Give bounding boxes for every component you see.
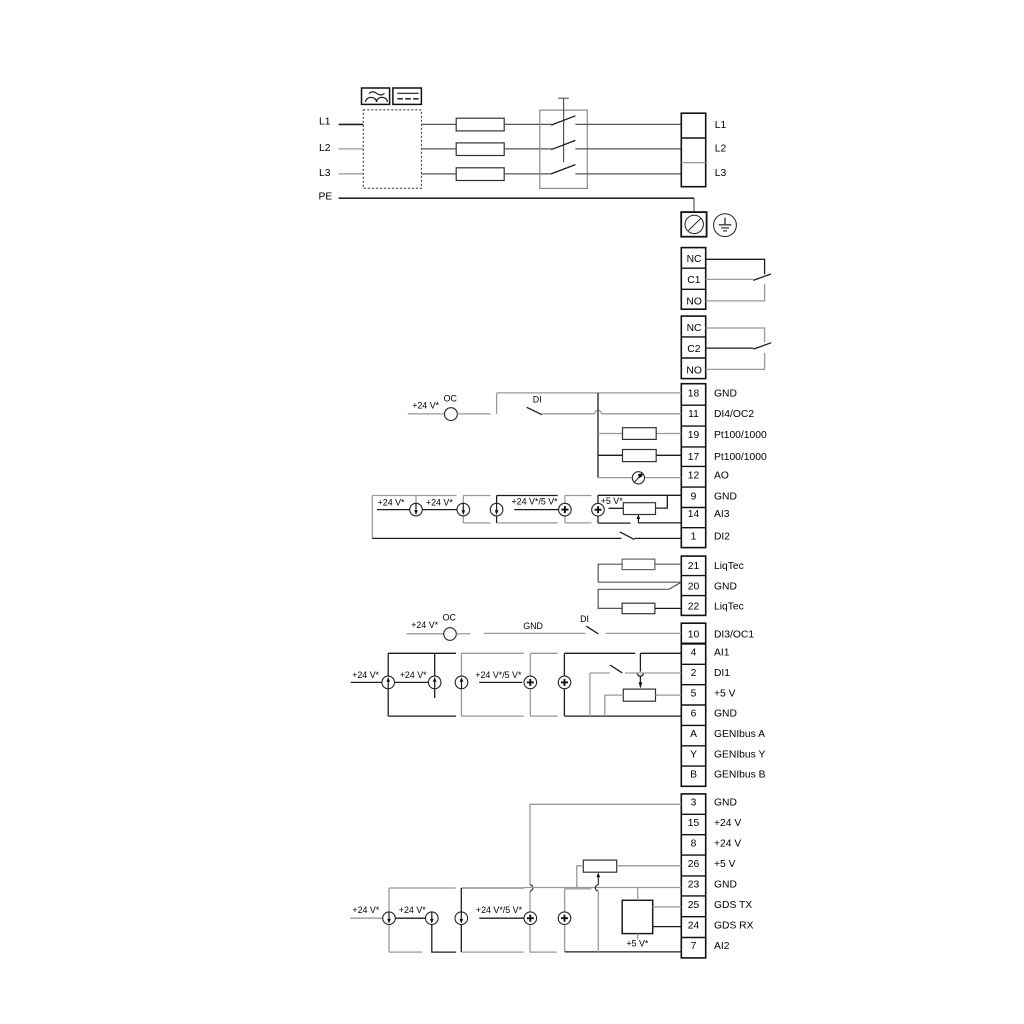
- svg-text:6: 6: [691, 709, 697, 720]
- svg-text:C1: C1: [687, 275, 700, 286]
- svg-text:DI2: DI2: [714, 532, 730, 543]
- svg-text:+5 V: +5 V: [714, 688, 736, 699]
- svg-text:GENIbus Y: GENIbus Y: [714, 749, 765, 760]
- svg-text:NO: NO: [686, 296, 701, 307]
- svg-text:+5 V*: +5 V*: [626, 939, 649, 949]
- svg-text:+24 V*: +24 V*: [411, 620, 438, 630]
- svg-text:GND: GND: [523, 621, 543, 631]
- svg-text:10: 10: [688, 629, 700, 640]
- svg-text:GDS RX: GDS RX: [714, 921, 754, 932]
- svg-text:23: 23: [688, 879, 700, 890]
- svg-text:25: 25: [688, 900, 700, 911]
- svg-text:GENIbus A: GENIbus A: [714, 729, 765, 740]
- svg-text:L3: L3: [319, 168, 331, 179]
- svg-text:5: 5: [691, 688, 697, 699]
- svg-text:+24 V*: +24 V*: [399, 905, 426, 915]
- svg-text:L2: L2: [319, 143, 331, 154]
- svg-text:LiqTec: LiqTec: [714, 602, 744, 613]
- svg-text:17: 17: [688, 452, 700, 463]
- svg-text:Y: Y: [690, 749, 697, 760]
- svg-text:4: 4: [691, 648, 697, 659]
- svg-text:GND: GND: [714, 879, 737, 890]
- svg-text:DI3/OC1: DI3/OC1: [714, 629, 754, 640]
- svg-text:A: A: [690, 729, 697, 740]
- svg-text:AI1: AI1: [714, 648, 730, 659]
- svg-text:DI: DI: [533, 394, 542, 404]
- svg-text:B: B: [690, 770, 697, 781]
- svg-text:22: 22: [688, 602, 700, 613]
- svg-text:GND: GND: [714, 491, 737, 502]
- svg-text:GDS TX: GDS TX: [714, 900, 752, 911]
- svg-text:OC: OC: [444, 394, 458, 404]
- svg-text:NO: NO: [686, 366, 701, 377]
- svg-text:8: 8: [691, 838, 697, 849]
- svg-text:18: 18: [688, 388, 700, 399]
- svg-text:19: 19: [688, 430, 700, 441]
- svg-text:L1: L1: [715, 120, 727, 131]
- svg-text:L3: L3: [715, 168, 727, 179]
- svg-text:AI2: AI2: [714, 941, 730, 952]
- svg-text:GND: GND: [714, 709, 737, 720]
- svg-text:DI1: DI1: [714, 668, 730, 679]
- svg-text:NC: NC: [687, 323, 702, 334]
- svg-text:26: 26: [688, 859, 700, 870]
- svg-text:15: 15: [688, 818, 700, 829]
- svg-text:24: 24: [688, 921, 700, 932]
- svg-text:LiqTec: LiqTec: [714, 561, 744, 572]
- svg-text:+24 V*: +24 V*: [412, 400, 439, 410]
- svg-text:Pt100/1000: Pt100/1000: [714, 452, 767, 463]
- svg-text:7: 7: [691, 941, 697, 952]
- svg-text:21: 21: [688, 561, 700, 572]
- svg-text:OC: OC: [443, 612, 457, 622]
- svg-text:DI: DI: [580, 614, 589, 624]
- svg-text:11: 11: [688, 409, 699, 420]
- svg-text:GND: GND: [714, 798, 737, 809]
- svg-text:GND: GND: [714, 581, 737, 592]
- svg-text:DI4/OC2: DI4/OC2: [714, 409, 754, 420]
- svg-text:2: 2: [691, 668, 697, 679]
- svg-text:9: 9: [691, 491, 697, 502]
- svg-text:L2: L2: [715, 144, 727, 155]
- svg-text:+24 V*: +24 V*: [426, 497, 453, 507]
- svg-text:Pt100/1000: Pt100/1000: [714, 430, 767, 441]
- svg-text:+24 V: +24 V: [714, 838, 741, 849]
- svg-text:AI3: AI3: [714, 509, 730, 520]
- svg-text:+5 V*: +5 V*: [601, 496, 624, 506]
- svg-text:PE: PE: [319, 192, 333, 203]
- svg-text:+24 V*: +24 V*: [378, 497, 405, 507]
- svg-text:+24 V*/5 V*: +24 V*/5 V*: [512, 497, 559, 507]
- svg-text:1: 1: [691, 532, 697, 543]
- svg-text:+24 V*: +24 V*: [400, 670, 427, 680]
- svg-text:AO: AO: [714, 470, 729, 481]
- svg-text:GENIbus B: GENIbus B: [714, 770, 766, 781]
- svg-text:3: 3: [691, 798, 697, 809]
- svg-text:C2: C2: [687, 344, 700, 355]
- svg-text:+24 V*/5 V*: +24 V*/5 V*: [475, 670, 522, 680]
- svg-text:+24 V: +24 V: [714, 818, 741, 829]
- svg-text:+24 V*/5 V*: +24 V*/5 V*: [476, 905, 523, 915]
- svg-text:20: 20: [688, 581, 700, 592]
- svg-text:14: 14: [688, 509, 700, 520]
- svg-text:NC: NC: [687, 254, 702, 265]
- svg-text:+24 V*: +24 V*: [352, 905, 379, 915]
- svg-text:+5 V: +5 V: [714, 859, 736, 870]
- svg-text:L1: L1: [319, 117, 331, 128]
- svg-text:GND: GND: [714, 388, 737, 399]
- svg-text:12: 12: [688, 470, 700, 481]
- svg-text:+24 V*: +24 V*: [352, 670, 379, 680]
